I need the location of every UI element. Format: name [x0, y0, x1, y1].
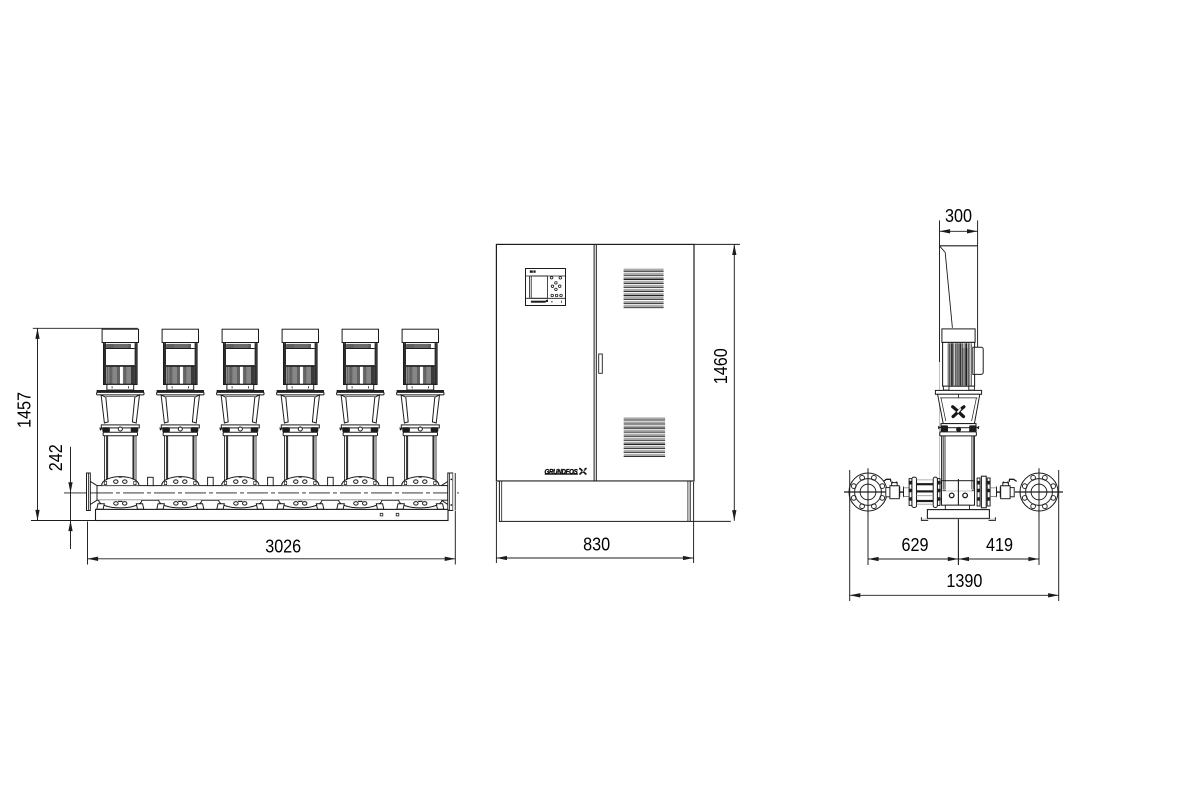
svg-text:629: 629: [902, 535, 929, 555]
svg-text:1460: 1460: [711, 348, 731, 384]
svg-text:830: 830: [583, 534, 610, 554]
svg-text:419: 419: [986, 535, 1013, 555]
svg-text:1390: 1390: [946, 571, 982, 591]
svg-text:242: 242: [46, 444, 66, 471]
svg-text:3026: 3026: [265, 536, 301, 556]
svg-text:300: 300: [945, 206, 972, 226]
svg-text:GRUNDFOS: GRUNDFOS: [545, 469, 579, 476]
svg-text:1457: 1457: [14, 392, 34, 428]
